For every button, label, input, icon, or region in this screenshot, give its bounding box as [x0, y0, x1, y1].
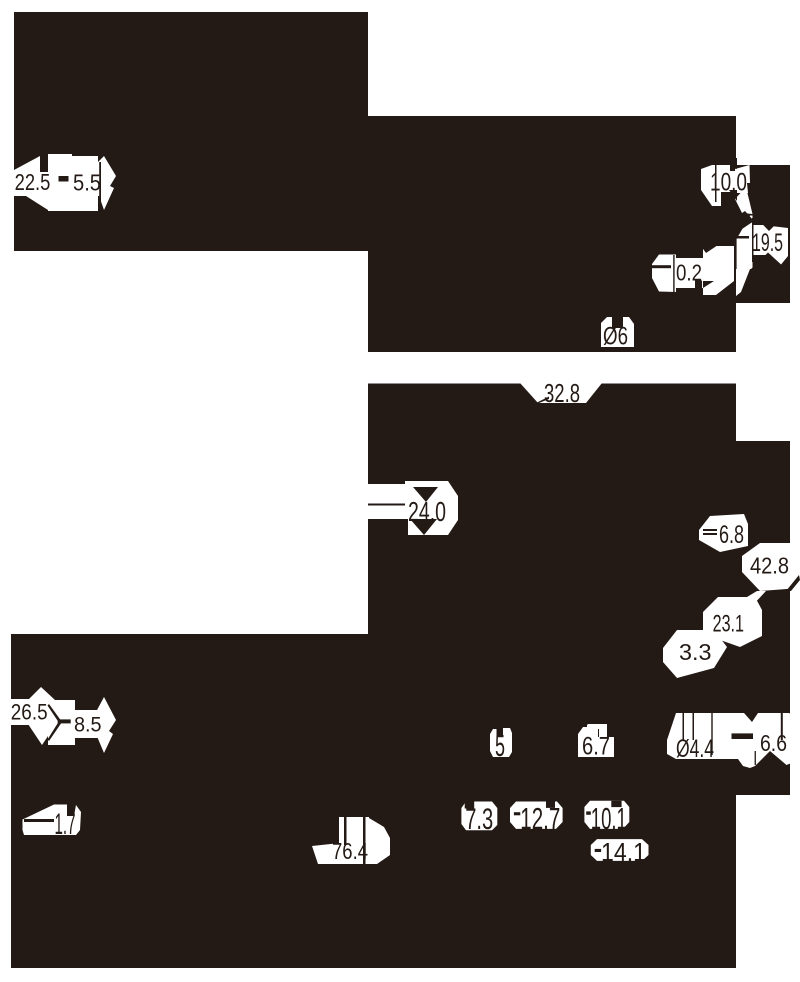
- svg-text:1.7: 1.7: [55, 808, 76, 841]
- svg-text:Ø4.4: Ø4.4: [676, 736, 714, 763]
- svg-text:23.1: 23.1: [713, 611, 744, 638]
- svg-text:3.3: 3.3: [679, 639, 712, 665]
- svg-text:8.5: 8.5: [74, 713, 102, 737]
- svg-text:Ø6: Ø6: [603, 323, 628, 351]
- svg-text:22.5: 22.5: [15, 169, 51, 195]
- svg-text:32.8: 32.8: [544, 380, 580, 408]
- svg-text:26.5: 26.5: [11, 700, 48, 725]
- svg-text:76.4: 76.4: [332, 838, 368, 864]
- svg-text:6.6: 6.6: [760, 730, 787, 756]
- svg-text:5.5: 5.5: [73, 170, 101, 196]
- svg-text:14.1: 14.1: [601, 837, 646, 867]
- svg-text:5: 5: [495, 729, 505, 763]
- svg-text:42.8: 42.8: [750, 553, 789, 579]
- svg-text:19.5: 19.5: [752, 230, 783, 257]
- svg-text:6.7: 6.7: [582, 733, 610, 761]
- svg-text:6.8: 6.8: [719, 522, 744, 549]
